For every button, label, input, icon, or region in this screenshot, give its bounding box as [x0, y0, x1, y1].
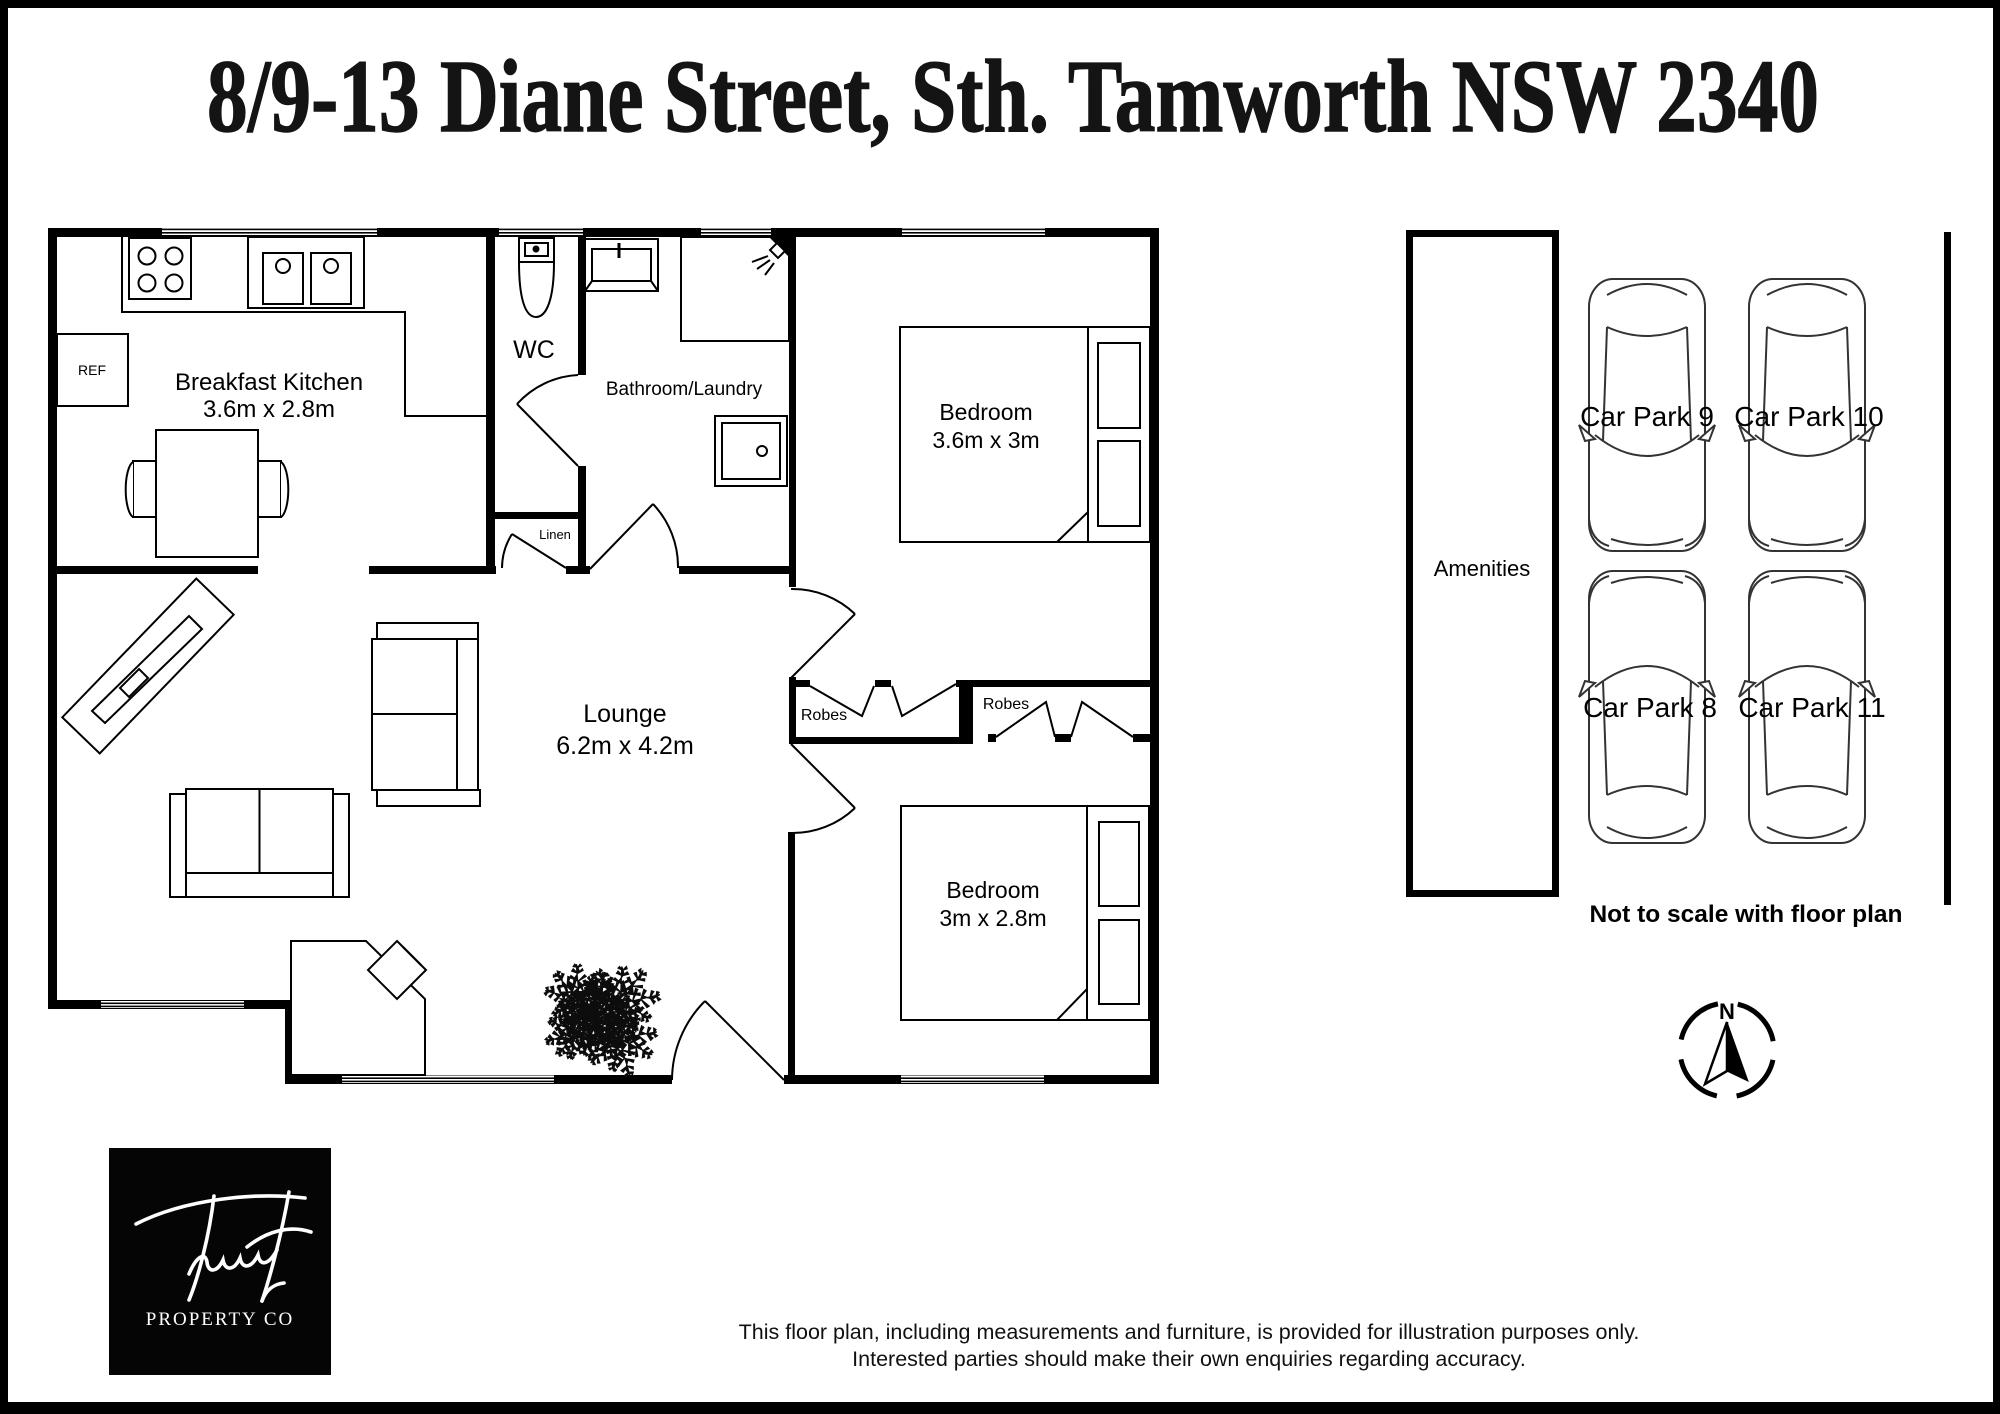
svg-text:Robes: Robes	[983, 696, 1029, 713]
svg-text:PROPERTY CO: PROPERTY CO	[146, 1309, 294, 1330]
svg-text:Linen: Linen	[539, 527, 571, 542]
svg-text:Car Park 9: Car Park 9	[1580, 401, 1714, 432]
svg-text:3m x 2.8m: 3m x 2.8m	[939, 905, 1046, 931]
svg-text:Not to scale with floor plan: Not to scale with floor plan	[1589, 901, 1902, 928]
svg-text:Interested parties should make: Interested parties should make their own…	[852, 1347, 1526, 1371]
svg-text:Lounge: Lounge	[583, 700, 666, 728]
svg-text:REF: REF	[78, 362, 106, 378]
svg-text:8/9-13 Diane Street, Sth. Tamw: 8/9-13 Diane Street, Sth. Tamworth NSW 2…	[207, 40, 1819, 155]
svg-text:Bedroom: Bedroom	[939, 399, 1032, 425]
svg-text:Bedroom: Bedroom	[946, 877, 1039, 903]
svg-text:N: N	[1719, 999, 1735, 1024]
svg-text:Car Park 10: Car Park 10	[1734, 401, 1883, 432]
svg-text:This floor plan, including mea: This floor plan, including measurements …	[739, 1320, 1640, 1344]
svg-text:Breakfast Kitchen: Breakfast Kitchen	[175, 369, 363, 396]
svg-text:6.2m x 4.2m: 6.2m x 4.2m	[556, 732, 694, 760]
svg-text:Robes: Robes	[801, 707, 847, 724]
svg-text:3.6m x 2.8m: 3.6m x 2.8m	[203, 396, 335, 423]
svg-text:3.6m x 3m: 3.6m x 3m	[932, 427, 1039, 453]
svg-text:WC: WC	[513, 336, 555, 364]
svg-text:Car Park 8: Car Park 8	[1583, 692, 1717, 723]
svg-text:Amenities: Amenities	[1434, 556, 1531, 581]
svg-text:Car Park 11: Car Park 11	[1738, 692, 1885, 723]
svg-text:Bathroom/Laundry: Bathroom/Laundry	[606, 379, 763, 400]
